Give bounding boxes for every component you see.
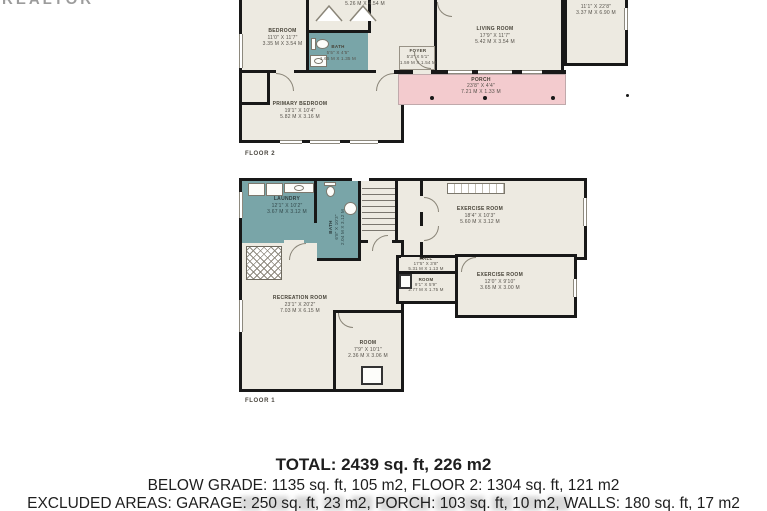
window	[239, 192, 243, 218]
floor2-living-room	[434, 0, 564, 70]
watermark-text: REALTOR	[2, 0, 94, 8]
window-well-box	[361, 366, 383, 385]
toilet-icon	[326, 186, 335, 197]
floor2-porch	[398, 74, 566, 105]
sink-icon	[294, 185, 304, 191]
closet-door-icon	[348, 4, 378, 22]
window	[239, 300, 243, 332]
window	[448, 70, 472, 74]
toilet-icon	[316, 39, 329, 49]
door-opening	[413, 70, 431, 74]
sink-icon	[314, 58, 323, 64]
wall	[267, 73, 270, 105]
porch-post	[551, 96, 555, 100]
porch-post	[626, 94, 629, 97]
closet-box	[399, 274, 412, 289]
window	[310, 140, 340, 144]
stairs	[362, 183, 395, 231]
window	[350, 140, 378, 144]
floor1-label: FLOOR 1	[245, 398, 275, 404]
window	[280, 140, 302, 144]
window	[239, 34, 243, 68]
porch-post	[483, 96, 487, 100]
wall	[395, 181, 398, 241]
floor2-label: FLOOR 2	[245, 151, 275, 157]
wall	[317, 258, 361, 261]
window	[522, 70, 542, 74]
floor2-garage	[564, 0, 628, 66]
bath-vertical-label: BATH 6'8" X 10'3" 2.04 M X 3.12 M	[328, 209, 346, 245]
door-opening	[420, 226, 423, 242]
grade-areas-text: BELOW GRADE: 1135 sq. ft, 105 m2, FLOOR …	[0, 477, 767, 495]
window	[624, 8, 628, 30]
total-area-text: TOTAL: 2439 sq. ft, 226 m2	[0, 455, 767, 475]
door-opening	[352, 178, 369, 181]
door-opening	[401, 257, 420, 260]
washer-icon	[248, 183, 265, 196]
exercise-counter	[447, 183, 505, 194]
door-opening	[420, 196, 423, 212]
window	[478, 70, 512, 74]
room-label-bath1: BATH 6'8" X 10'3" 2.04 M X 3.12 M	[313, 203, 361, 251]
wall	[420, 181, 423, 259]
window	[583, 198, 587, 226]
room-dim-m: 2.04 M X 3.12 M	[340, 209, 346, 245]
closet-door-icon	[314, 4, 344, 22]
porch-post	[430, 96, 434, 100]
hatched-storage-box	[246, 246, 282, 280]
floor-plan-page: REALTOR 5.26 M X 4.54 M	[0, 0, 767, 511]
dryer-icon	[266, 183, 283, 196]
excluded-areas-text: EXCLUDED AREAS: GARAGE: 250 sq. ft, 23 m…	[0, 495, 767, 511]
wall	[242, 102, 270, 105]
window	[573, 279, 577, 297]
